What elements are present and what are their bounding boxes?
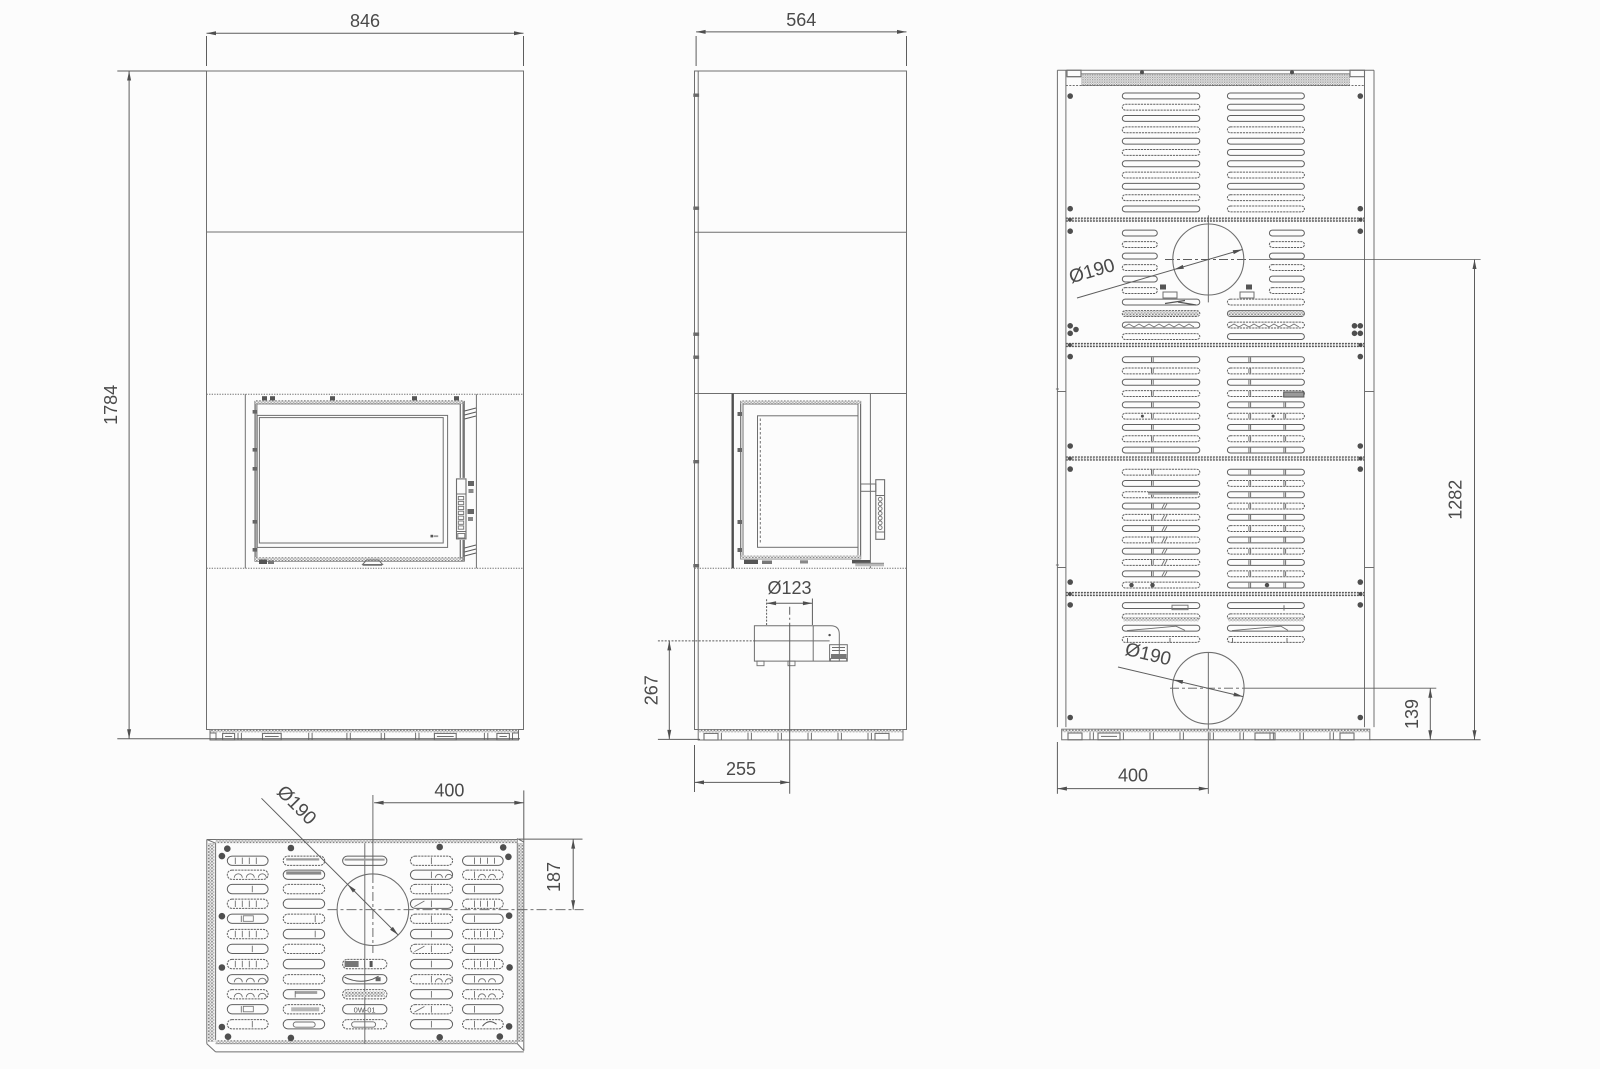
svg-text:139: 139 [1402, 699, 1422, 729]
svg-text:267: 267 [642, 675, 662, 705]
svg-text:187: 187 [544, 862, 564, 892]
svg-text:Ø123: Ø123 [767, 578, 811, 598]
svg-text:400: 400 [1118, 766, 1148, 786]
svg-text:1282: 1282 [1446, 480, 1466, 520]
svg-text:400: 400 [434, 780, 464, 800]
svg-text:846: 846 [350, 11, 380, 31]
svg-text:0W-01: 0W-01 [354, 1005, 376, 1014]
svg-text:1784: 1784 [101, 385, 121, 425]
svg-text:564: 564 [786, 10, 816, 30]
svg-text:255: 255 [726, 759, 756, 779]
